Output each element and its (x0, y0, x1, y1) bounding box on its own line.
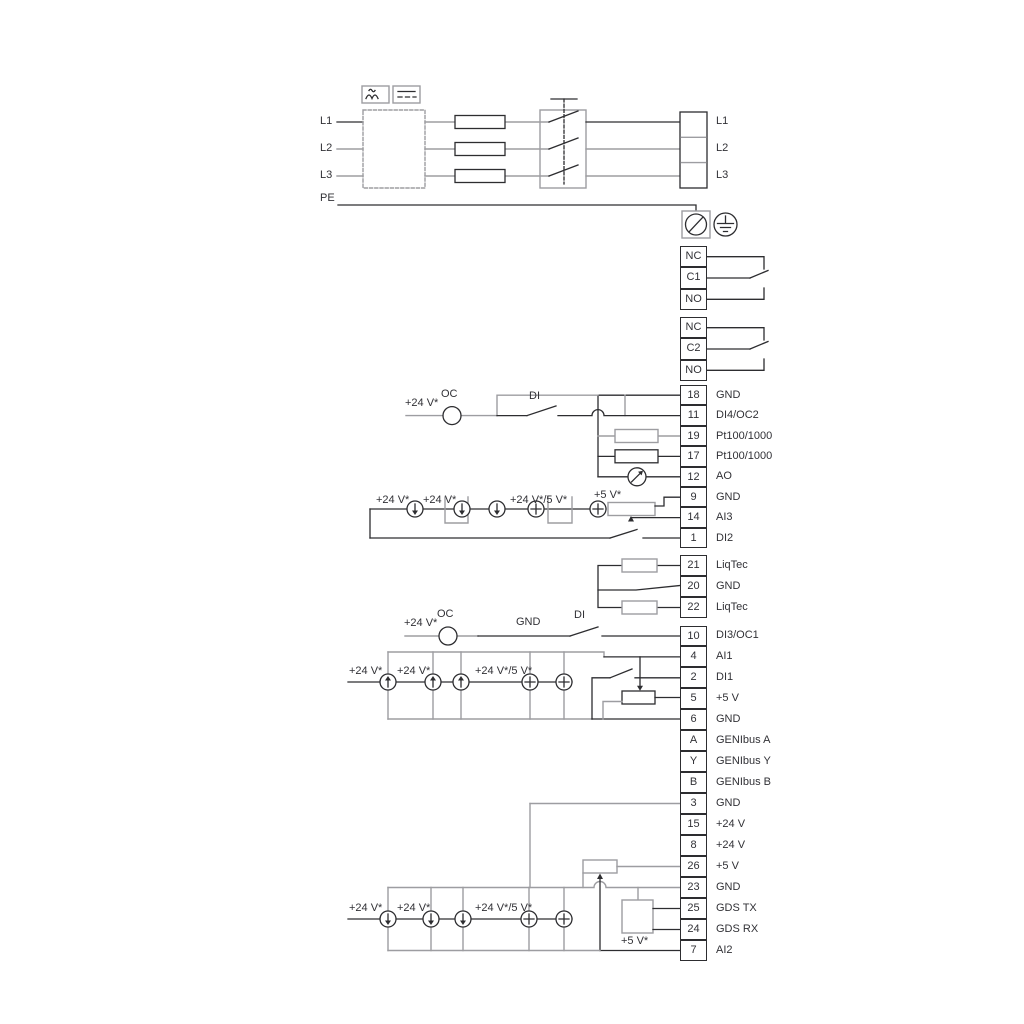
fuse-l3 (455, 170, 505, 183)
dc-symbol-icon (393, 86, 420, 103)
terminal-cell-io_middle-B: B (680, 772, 707, 793)
label-annotations-upper_io-oc: OC (441, 388, 458, 401)
label-mains-right-1: L2 (716, 142, 728, 155)
liqtec-sensor-21 (622, 559, 657, 572)
terminal-cell-io_middle-10: 10 (680, 626, 707, 647)
ground-symbol-icon (714, 213, 737, 236)
terminal-cell-relay2-C2: C2 (680, 338, 707, 359)
terminal-cell-io_lower-25: 25 (680, 898, 707, 919)
label-annotations-upper_io-row_v24_a: +24 V* (376, 494, 409, 507)
resistor-pt100-17 (615, 450, 658, 463)
label-mains-right-2: L3 (716, 169, 728, 182)
terminal-label-io_middle-6: GND (716, 713, 740, 726)
terminal-label-io_middle-2: DI1 (716, 671, 733, 684)
liqtec-section (598, 559, 680, 614)
potentiometer-ai3 (608, 503, 655, 516)
label-annotations-middle_io-oc: OC (437, 608, 454, 621)
di4-switch (527, 406, 556, 416)
liqtec-sensor-22 (622, 601, 657, 614)
mains-section (337, 86, 737, 238)
oc2-open-collector-symbol (443, 407, 461, 425)
ac-symbol-icon (362, 86, 389, 103)
wire-20-gnd (598, 586, 680, 591)
terminal-cell-io_middle-2: 2 (680, 667, 707, 688)
pe-terminal (682, 211, 710, 238)
relay-output-1 (707, 257, 768, 300)
label-annotations-lower_io-row_v24_a: +24 V* (349, 902, 382, 915)
terminal-label-io_upper-12: AO (716, 470, 732, 483)
terminal-label-liqtec-22: LiqTec (716, 601, 748, 614)
terminal-label-io_lower-8: +24 V (716, 839, 745, 852)
terminal-cell-io_middle-Y: Y (680, 751, 707, 772)
wiring-diagram-canvas (0, 0, 1024, 1024)
terminal-label-io_middle-4: AI1 (716, 650, 733, 663)
label-mains-right-0: L1 (716, 115, 728, 128)
terminal-label-io_upper-11: DI4/OC2 (716, 409, 759, 422)
terminal-label-io_lower-7: AI2 (716, 944, 733, 957)
terminal-label-io_middle-10: DI3/OC1 (716, 629, 759, 642)
mains-terminal-block (680, 112, 707, 188)
terminal-cell-io_lower-23: 23 (680, 877, 707, 898)
label-annotations-middle_io-di: DI (574, 609, 585, 622)
wiring-diagram: NCC1NONCC2NO18GND11DI4/OC219Pt100/100017… (0, 0, 1024, 1024)
di1-switch (610, 669, 632, 678)
terminal-cell-io_middle-A: A (680, 730, 707, 751)
label-annotations-middle_io-row_v24_a: +24 V* (349, 665, 382, 678)
label-annotations-middle_io-row_v24_b: +24 V* (397, 665, 430, 678)
terminal-cell-relay2-NC: NC (680, 317, 707, 338)
terminal-cell-io_lower-26: 26 (680, 856, 707, 877)
label-annotations-upper_io-di: DI (529, 390, 540, 403)
terminal-cell-relay1-C1: C1 (680, 267, 707, 288)
di4-option-bracket (497, 395, 625, 415)
main-switch (540, 99, 586, 188)
terminal-label-io_upper-19: Pt100/1000 (716, 430, 772, 443)
label-annotations-middle_io-gnd: GND (516, 616, 540, 629)
terminal-label-io_upper-9: GND (716, 491, 740, 504)
terminal-label-io_lower-23: GND (716, 881, 740, 894)
terminal-cell-relay1-NC: NC (680, 246, 707, 267)
terminal-cell-liqtec-22: 22 (680, 597, 707, 618)
terminal-cell-relay1-NO: NO (680, 289, 707, 310)
terminal-label-io_lower-25: GDS TX (716, 902, 757, 915)
terminal-cell-io_upper-1: 1 (680, 528, 707, 548)
wire-23-gnd (388, 882, 680, 888)
terminal-cell-io_middle-4: 4 (680, 646, 707, 667)
terminal-cell-io_upper-9: 9 (680, 487, 707, 507)
terminal-cell-io_lower-15: 15 (680, 814, 707, 835)
oc1-open-collector-symbol (439, 627, 457, 645)
terminal-label-io_upper-17: Pt100/1000 (716, 450, 772, 463)
potentiometer-ai2 (583, 860, 617, 873)
potentiometer-ai1 (622, 691, 655, 704)
relay-output-2 (707, 328, 768, 371)
terminal-cell-liqtec-21: 21 (680, 555, 707, 576)
fuse-l2 (455, 143, 505, 156)
terminal-label-liqtec-21: LiqTec (716, 559, 748, 572)
terminal-label-io_lower-26: +5 V (716, 860, 739, 873)
label-annotations-lower_io-row_v24_b: +24 V* (397, 902, 430, 915)
label-annotations-lower_io-v5: +5 V* (621, 935, 648, 948)
label-mains-left-0: L1 (320, 115, 332, 128)
terminal-label-liqtec-20: GND (716, 580, 740, 593)
terminal-cell-io_middle-5: 5 (680, 688, 707, 709)
terminal-label-io_middle-Y: GENIbus Y (716, 755, 771, 768)
lower-io-section (348, 804, 680, 951)
terminal-cell-relay2-NO: NO (680, 360, 707, 381)
terminal-cell-io_lower-24: 24 (680, 919, 707, 940)
label-mains-left-2: L3 (320, 169, 332, 182)
label-annotations-middle_io-v24: +24 V* (404, 617, 437, 630)
terminal-label-io_middle-5: +5 V (716, 692, 739, 705)
terminal-cell-io_upper-11: 11 (680, 405, 707, 425)
terminal-cell-io_upper-18: 18 (680, 385, 707, 405)
resistor-pt100-19 (615, 430, 658, 443)
gds-sensor-module (622, 900, 653, 933)
terminal-cell-io_upper-12: 12 (680, 467, 707, 487)
terminal-label-io_upper-14: AI3 (716, 511, 733, 524)
label-annotations-upper_io-v24: +24 V* (405, 397, 438, 410)
terminal-label-io_lower-3: GND (716, 797, 740, 810)
terminal-label-io_upper-18: GND (716, 389, 740, 402)
wire-pe (338, 205, 696, 211)
terminal-cell-io_lower-7: 7 (680, 940, 707, 961)
terminal-label-io_upper-1: DI2 (716, 532, 733, 545)
di2-switch (610, 530, 637, 539)
terminal-cell-io_lower-3: 3 (680, 793, 707, 814)
label-annotations-upper_io-row_v24_5: +24 V*/5 V* (510, 494, 567, 507)
terminal-label-io_middle-A: GENIbus A (716, 734, 770, 747)
label-annotations-middle_io-row_v24_5: +24 V*/5 V* (475, 665, 532, 678)
label-annotations-lower_io-row_v24_5: +24 V*/5 V* (475, 902, 532, 915)
terminal-cell-io_middle-6: 6 (680, 709, 707, 730)
terminal-cell-io_lower-8: 8 (680, 835, 707, 856)
terminal-cell-io_upper-17: 17 (680, 446, 707, 466)
di3-switch (570, 627, 598, 636)
label-annotations-upper_io-row_v5: +5 V* (594, 489, 621, 502)
upper-io-section (370, 395, 680, 538)
fuse-l1 (455, 116, 505, 129)
terminal-cell-io_upper-19: 19 (680, 426, 707, 446)
label-annotations-upper_io-row_v24_b: +24 V* (423, 494, 456, 507)
terminal-cell-liqtec-20: 20 (680, 576, 707, 597)
terminal-label-io_lower-15: +24 V (716, 818, 745, 831)
label-mains-left-1: L2 (320, 142, 332, 155)
terminal-label-io_middle-B: GENIbus B (716, 776, 771, 789)
terminal-label-io_lower-24: GDS RX (716, 923, 758, 936)
label-mains-left-3: PE (320, 192, 335, 205)
emc-filter-box (363, 110, 425, 188)
wire-11 (558, 410, 680, 416)
terminal-cell-io_upper-14: 14 (680, 507, 707, 527)
